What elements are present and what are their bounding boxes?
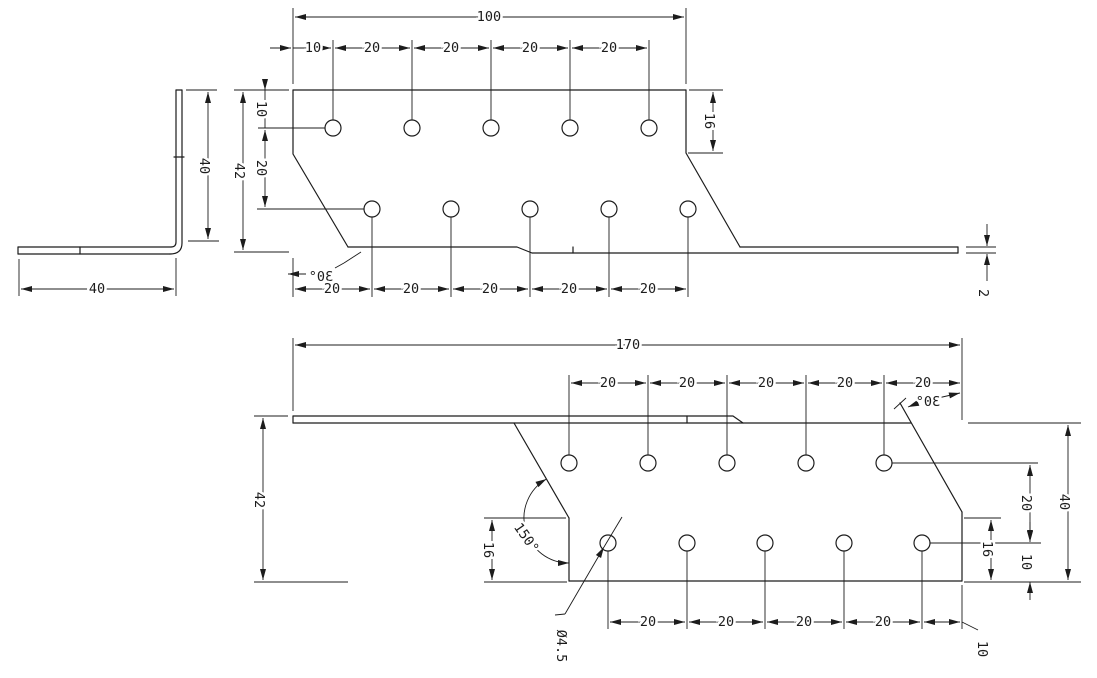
bottom-view-dim-left42: 42 <box>251 416 348 582</box>
dim-label: 20 <box>640 614 656 630</box>
hole <box>561 455 577 471</box>
hole <box>364 201 380 217</box>
dim-label: 20 <box>640 281 656 297</box>
bottom-view-dim-right16: 16 <box>964 518 1081 582</box>
angle-label: 30° <box>916 394 940 410</box>
dim-label: 20 <box>324 281 340 297</box>
dim-label: 20 <box>915 375 931 391</box>
dim-label: 20 <box>482 281 498 297</box>
dim-label: 20 <box>561 281 577 297</box>
hole <box>325 120 341 136</box>
hole <box>600 535 616 551</box>
side-view-dim-height: 40 <box>186 90 219 241</box>
dim-label: 10 <box>253 101 269 117</box>
top-view-dim-top-pitch: 10 20 20 20 20 <box>270 40 647 56</box>
top-view-dim-right16: 16 <box>688 90 723 153</box>
angle-label: 150° <box>510 520 542 556</box>
top-view-dim-left: 42 10 20 <box>231 79 289 252</box>
bottom-view-dim-length: 170 <box>293 337 962 420</box>
top-view-dim-thickness: 2 <box>966 224 996 297</box>
hole <box>562 120 578 136</box>
hole <box>757 535 773 551</box>
dim-label: 20 <box>1018 495 1034 511</box>
dim-label: 10 <box>305 40 321 56</box>
side-view: 40 40 <box>18 90 219 297</box>
hole <box>640 455 656 471</box>
dim-label: 10 <box>1018 554 1034 570</box>
bottom-view-dim-bottom-pitch: 20 20 20 20 10 <box>610 585 990 657</box>
dim-label: 16 <box>979 541 995 557</box>
dim-top-width-label: 100 <box>477 9 501 25</box>
side-view-dim-leg: 40 <box>19 258 176 297</box>
bottom-view-dim-right20: 20 <box>1018 465 1034 541</box>
hole-diameter-label: Ø4.5 <box>553 630 569 663</box>
hole <box>641 120 657 136</box>
bottom-view-dim-right10: 10 <box>1018 522 1034 600</box>
top-view-dim-width: 100 <box>293 8 686 84</box>
hole <box>679 535 695 551</box>
dim-label: 42 <box>231 163 247 179</box>
dim-label: 10 <box>974 641 990 657</box>
dim-label: 20 <box>403 281 419 297</box>
hole <box>914 535 930 551</box>
technical-drawing: 40 40 <box>0 0 1097 678</box>
bottom-view-outline <box>293 403 962 581</box>
dim-label: 20 <box>679 375 695 391</box>
dim-label: 20 <box>443 40 459 56</box>
dim-side-leg-label: 40 <box>89 281 105 297</box>
dim-label: 20 <box>758 375 774 391</box>
hole-diameter-leader: Ø4.5 <box>553 517 622 662</box>
dim-label: 20 <box>601 40 617 56</box>
top-view-dim-bottom-pitch: 20 20 20 20 20 <box>293 258 686 297</box>
dim-bottom-length-label: 170 <box>616 337 640 353</box>
hole <box>798 455 814 471</box>
bottom-view-angle-150: 150° <box>510 479 569 563</box>
bottom-view-angle-30: 30° <box>894 393 960 410</box>
dim-label: 40 <box>1056 494 1072 510</box>
hole <box>443 201 459 217</box>
dim-side-height-label: 40 <box>196 158 212 174</box>
dim-label: 20 <box>522 40 538 56</box>
hole <box>719 455 735 471</box>
dim-label: 16 <box>480 542 496 558</box>
hole <box>404 120 420 136</box>
hole <box>680 201 696 217</box>
dim-label: 20 <box>600 375 616 391</box>
hole <box>601 201 617 217</box>
bottom-view-dim-top-pitch: 20 20 20 20 20 <box>571 375 960 391</box>
top-view: 100 10 20 20 20 20 42 10 20 <box>231 8 996 297</box>
dim-label: 20 <box>837 375 853 391</box>
side-view-outline <box>18 90 184 254</box>
dim-label: 42 <box>251 492 267 508</box>
dim-label: 20 <box>875 614 891 630</box>
bottom-view: 170 20 20 20 20 20 30° 42 <box>251 337 1081 662</box>
hole <box>522 201 538 217</box>
hole <box>876 455 892 471</box>
dim-label: 16 <box>701 113 717 129</box>
dim-label: 20 <box>253 160 269 176</box>
hole <box>483 120 499 136</box>
dim-label: 20 <box>796 614 812 630</box>
hole <box>836 535 852 551</box>
dim-label: 20 <box>718 614 734 630</box>
dim-label: 20 <box>364 40 380 56</box>
top-view-outline <box>293 90 958 253</box>
dim-label: 2 <box>975 289 991 297</box>
drawing-sheet: 40 40 <box>0 0 1097 678</box>
